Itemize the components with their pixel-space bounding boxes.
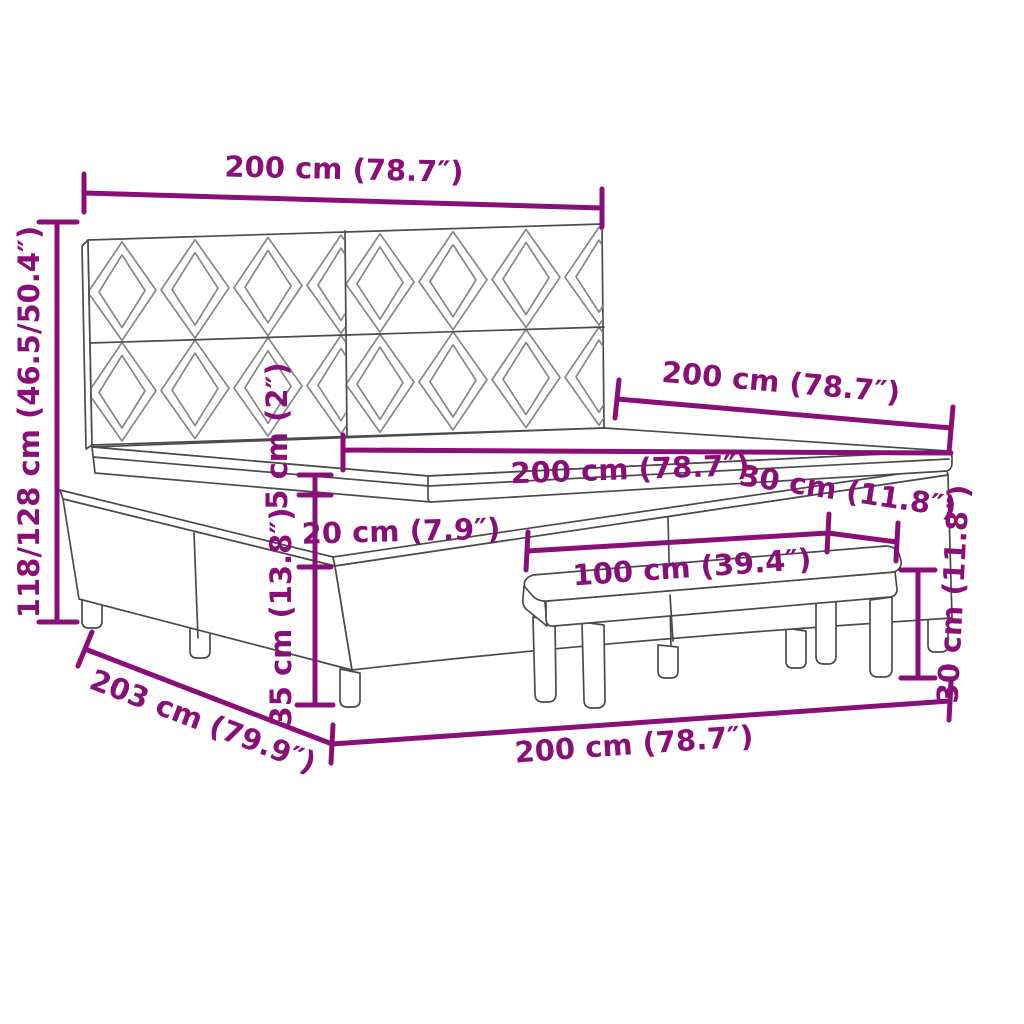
product-dimension-diagram: 200 cm (78.7″) 118/128 cm (46.5/50.4″) 2… xyxy=(0,0,1024,1024)
bench-leg xyxy=(816,598,836,664)
bench-leg xyxy=(658,645,678,678)
bench-leg xyxy=(582,622,605,708)
diagram-canvas: 200 cm (78.7″) 118/128 cm (46.5/50.4″) 2… xyxy=(0,0,1024,1024)
label-topper-thickness: 5 cm (2″) xyxy=(260,362,294,509)
label-bed-length-top: 200 cm (78.7″) xyxy=(660,355,901,410)
label-total-height: 118/128 cm (46.5/50.4″) xyxy=(12,226,46,618)
label-mattress-thickness: 20 cm (7.9″) xyxy=(301,512,501,551)
bed-illustration xyxy=(60,224,952,708)
label-headboard-width: 200 cm (78.7″) xyxy=(224,149,464,188)
label-base-height: 35 cm (13.8″) xyxy=(264,508,298,727)
bed-leg xyxy=(786,628,806,668)
bed-leg xyxy=(340,669,360,707)
bench-leg xyxy=(870,597,892,677)
bench-leg xyxy=(533,617,556,702)
